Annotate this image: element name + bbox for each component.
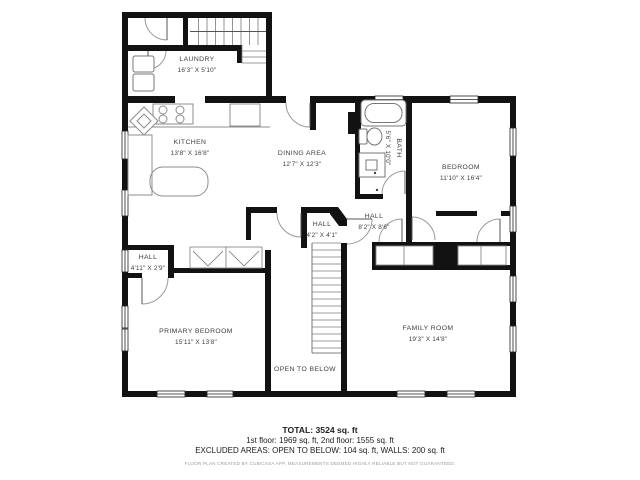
room-name: KITCHEN: [171, 137, 210, 148]
room-dims: 12'7" X 12'3": [278, 159, 326, 170]
room-dims: 8'2" X 8'6": [358, 222, 389, 233]
disclaimer: FLOOR PLAN CREATED BY CUBICASA APP. MEAS…: [0, 461, 640, 466]
room-name: BATH: [393, 131, 404, 166]
room-label-bedroom: BEDROOM 11'10" X 16'4": [440, 162, 482, 184]
room-dims: 19'3" X 14'8": [403, 334, 454, 345]
room-name: FAMILY ROOM: [403, 323, 454, 334]
room-name: OPEN TO BELOW: [274, 364, 336, 375]
room-label-family-room: FAMILY ROOM 19'3" X 14'8": [403, 323, 454, 345]
room-label-open-to-below: OPEN TO BELOW: [274, 364, 336, 375]
room-dims: 16'3" X 5'10": [178, 65, 217, 76]
floor-areas: 1st floor: 1969 sq. ft, 2nd floor: 1555 …: [0, 436, 640, 446]
room-name: DINING AREA: [278, 148, 326, 159]
room-dims: 4'11" X 2'9": [131, 263, 166, 274]
room-name: LAUNDRY: [178, 54, 217, 65]
room-label-bath: BATH 5'6" X 10'0": [382, 131, 404, 166]
room-name: HALL: [358, 211, 389, 222]
room-label-hall-left: HALL 4'11" X 2'9": [131, 252, 166, 274]
room-dims: 13'8" X 16'8": [171, 148, 210, 159]
toilet: [359, 129, 367, 144]
stairs-main: [312, 243, 341, 353]
room-label-hall-upper: HALL 8'2" X 8'6": [358, 211, 389, 233]
room-label-kitchen: KITCHEN 13'8" X 16'8": [171, 137, 210, 159]
room-name: PRIMARY BEDROOM: [159, 326, 233, 337]
room-name: BEDROOM: [440, 162, 482, 173]
room-dims: 5'6" X 10'0": [382, 131, 393, 166]
room-name: HALL: [306, 219, 337, 230]
summary-block: TOTAL: 3524 sq. ft 1st floor: 1969 sq. f…: [0, 425, 640, 466]
total-area: TOTAL: 3524 sq. ft: [0, 425, 640, 436]
excluded-areas: EXCLUDED AREAS: OPEN TO BELOW: 104 sq. f…: [0, 446, 640, 456]
washer-dryer: [133, 56, 154, 91]
room-name: HALL: [131, 252, 166, 263]
room-label-dining: DINING AREA 12'7" X 12'3": [278, 148, 326, 170]
room-dims: 15'11" X 13'8": [159, 337, 233, 348]
room-label-hall-center: HALL 4'2" X 4'1": [306, 219, 337, 241]
room-dims: 11'10" X 16'4": [440, 173, 482, 184]
floor-plan: LAUNDRY 16'3" X 5'10" KITCHEN 13'8" X 16…: [0, 0, 640, 480]
room-label-primary-bedroom: PRIMARY BEDROOM 15'11" X 13'8": [159, 326, 233, 348]
room-label-laundry: LAUNDRY 16'3" X 5'10": [178, 54, 217, 76]
closets: [190, 246, 506, 268]
room-dims: 4'2" X 4'1": [306, 230, 337, 241]
